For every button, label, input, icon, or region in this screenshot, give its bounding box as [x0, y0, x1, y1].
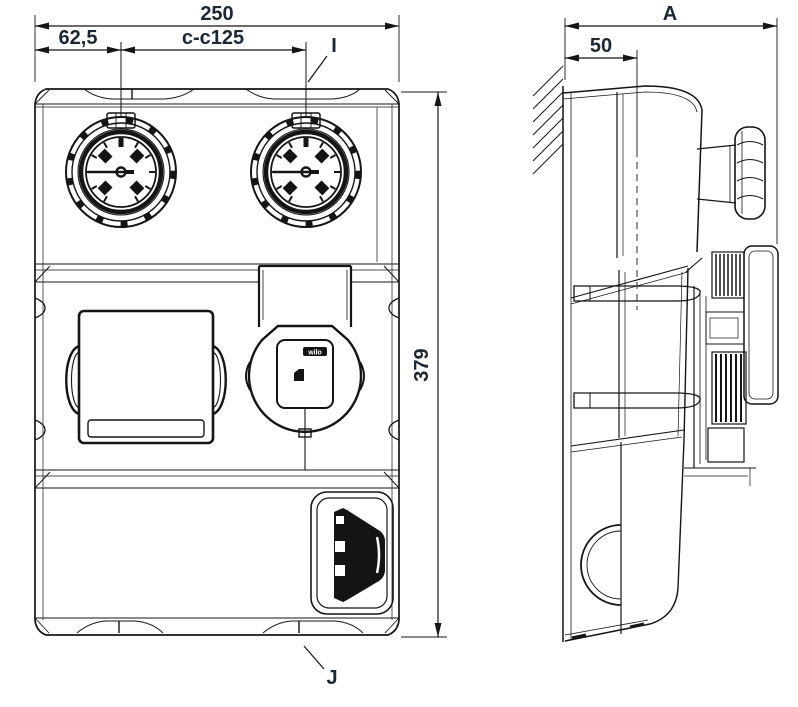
technical-drawing-canvas: wilo 250: [0, 0, 798, 707]
dim-wall-offset: 50: [590, 35, 612, 57]
callout-I: I: [331, 35, 337, 57]
pump: wilo: [246, 266, 364, 470]
pump-brand-label: wilo: [307, 350, 322, 357]
dim-left-offset: 62,5: [59, 27, 98, 49]
dim-center-to-center: c-c125: [182, 27, 244, 49]
side-dimensions: A 50: [565, 3, 777, 310]
side-view: A 50: [533, 3, 778, 642]
thermometer-gauge-right: [251, 113, 361, 227]
control-box: [66, 311, 226, 443]
dim-height: 379: [411, 348, 433, 381]
front-view: wilo 250: [35, 3, 447, 689]
pump-display-icon: [294, 369, 304, 381]
callout-J: J: [326, 667, 337, 689]
side-body-outline: [563, 86, 702, 642]
front-dimensions: 250 62,5 c-c125 I 379 J: [35, 3, 447, 689]
thermometer-knob-side: [697, 127, 765, 219]
wall-hatching: [533, 66, 563, 174]
valve-lever: [311, 492, 393, 614]
dim-overall-width: 250: [200, 3, 233, 25]
dim-overall-depth: A: [663, 3, 677, 25]
thermometer-gauge-left: [66, 113, 176, 227]
drawing-page: wilo 250: [0, 0, 798, 707]
pump-motor-side: [684, 246, 778, 486]
